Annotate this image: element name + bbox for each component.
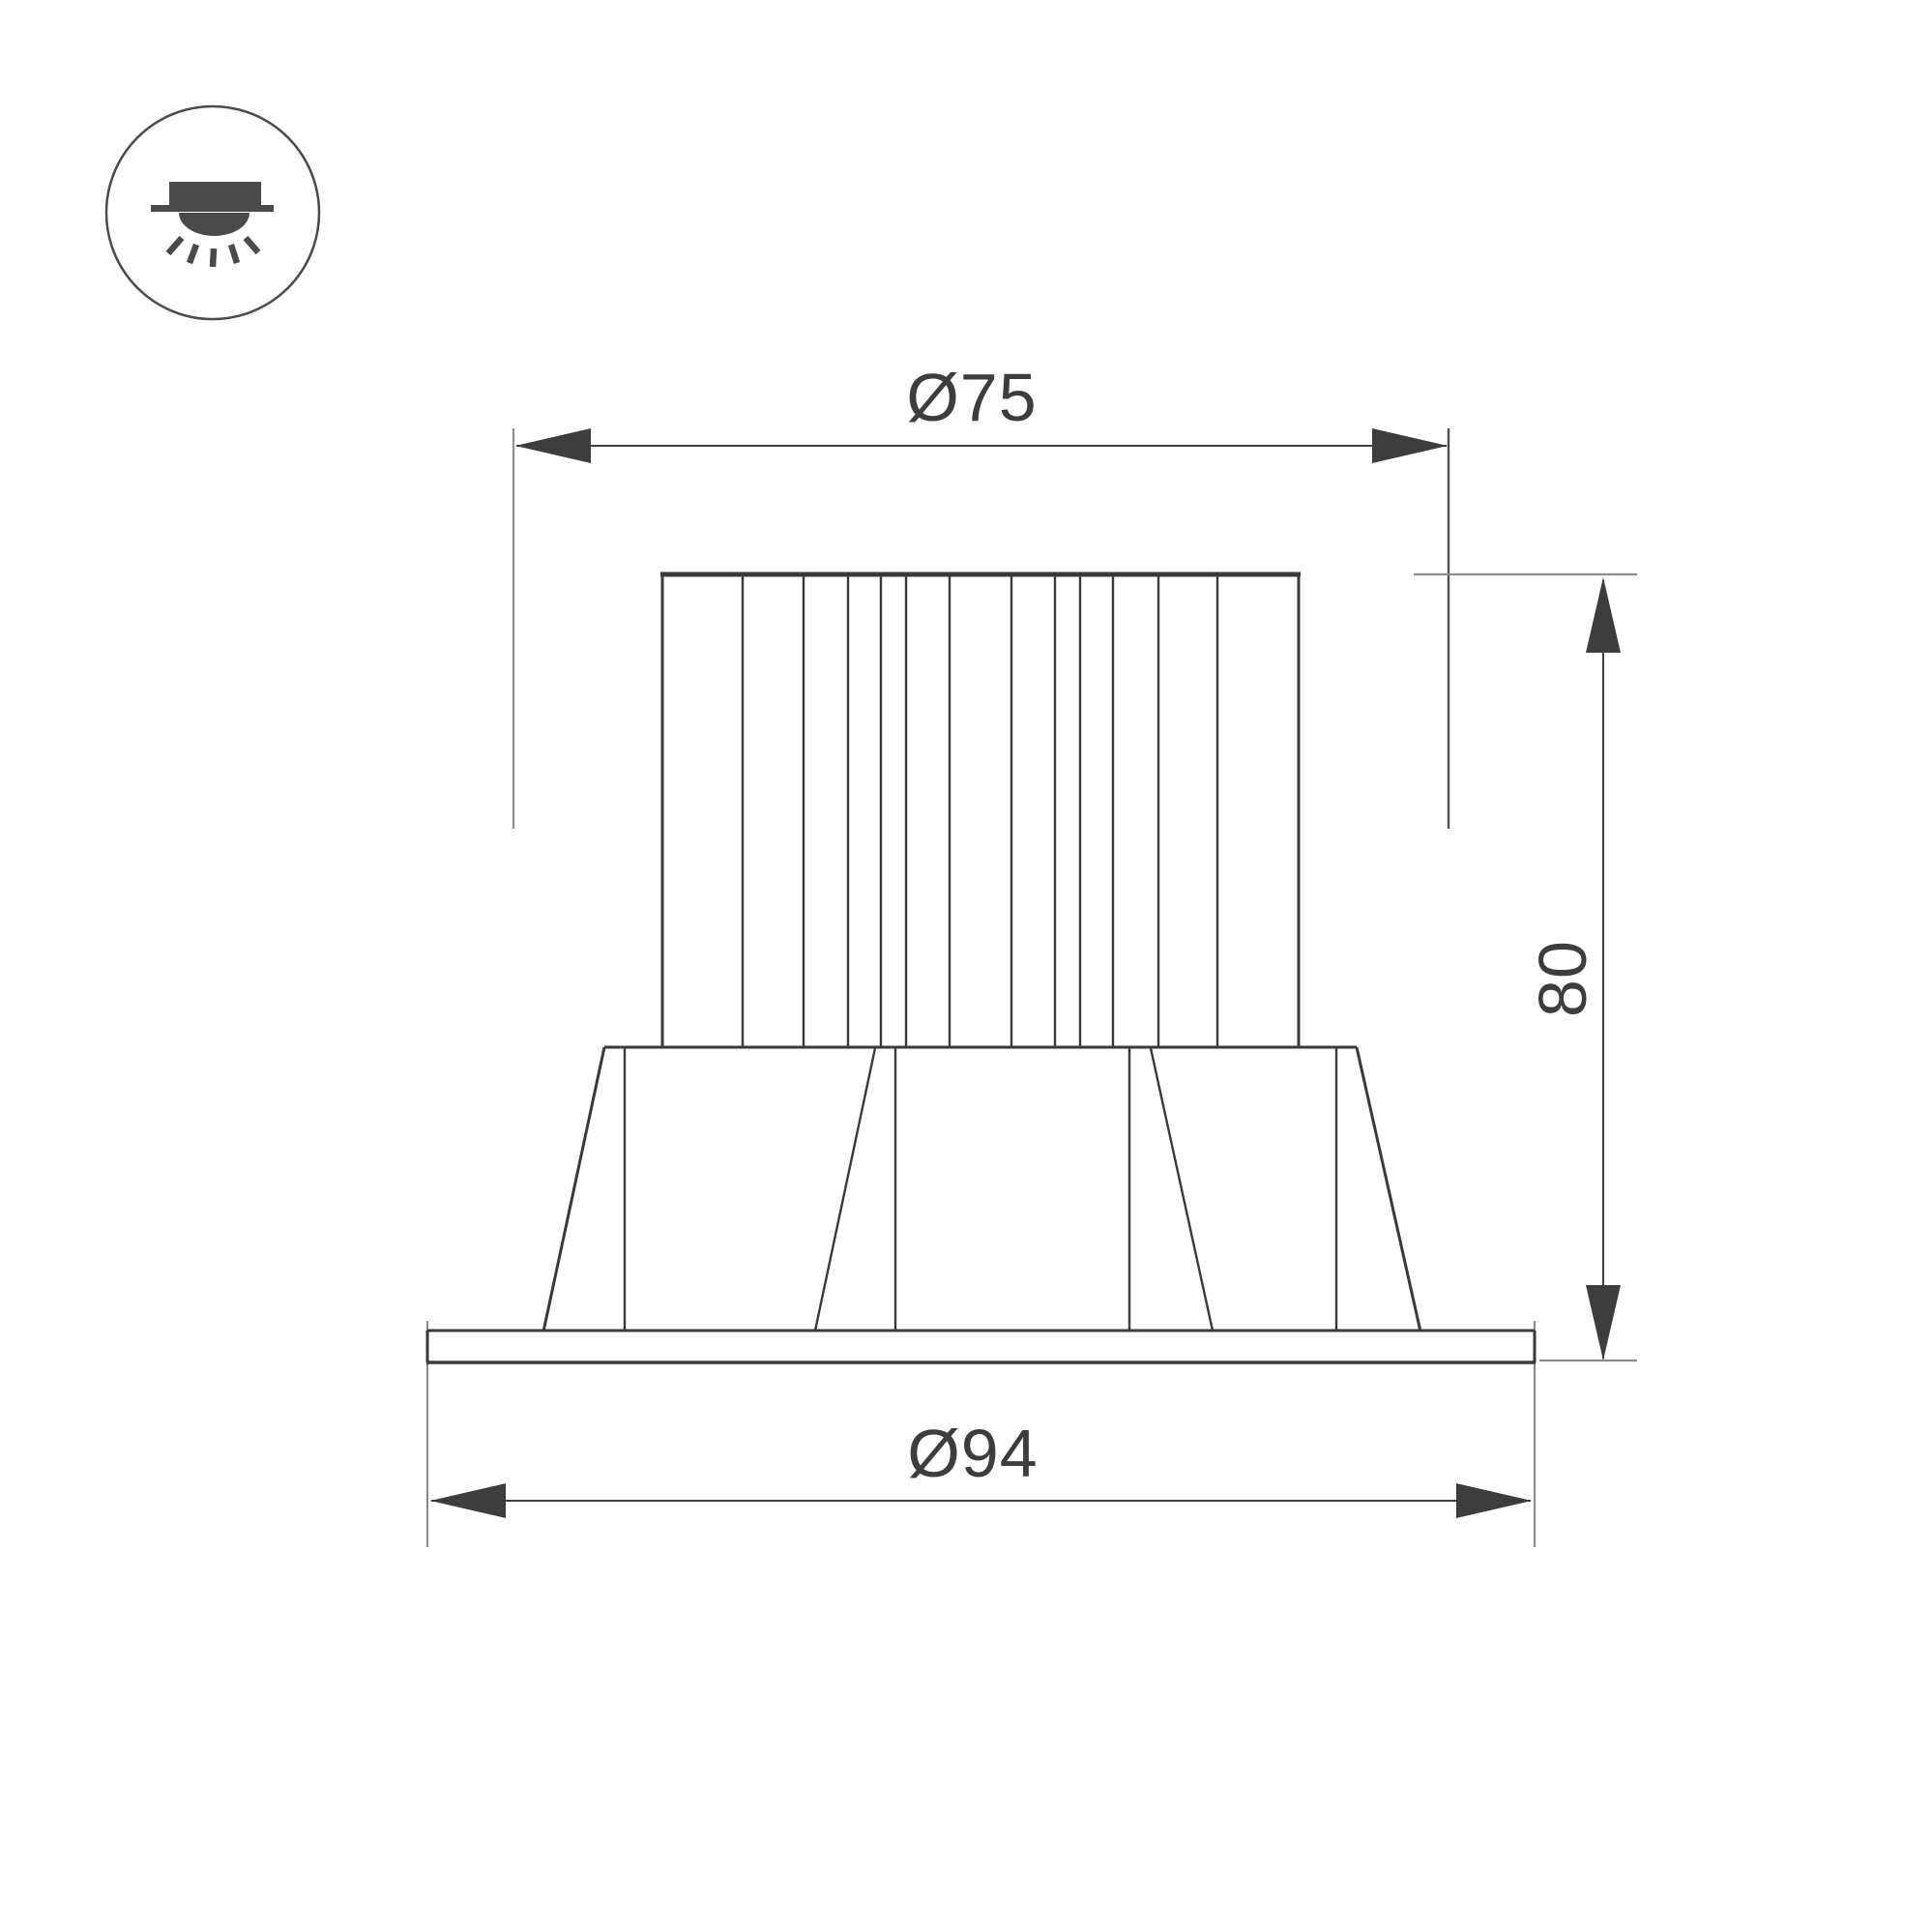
dimension-bottom-diameter: Ø94 (430, 1416, 1532, 1518)
heatsink-fins (743, 576, 1217, 1046)
heatsink (660, 574, 1301, 1047)
arrow-down-icon (1586, 1285, 1621, 1361)
dimension-top-diameter: Ø75 (515, 360, 1448, 463)
dim-label-bottom-diameter: Ø94 (907, 1416, 1038, 1491)
body-left-slant (543, 1047, 604, 1332)
icon-ceiling-flange (151, 205, 274, 212)
extension-lines (427, 428, 1637, 1547)
arrow-right-icon (1372, 428, 1448, 463)
trim-flange (426, 1331, 1536, 1362)
drawing-sheet: Ø75 80 Ø94 (0, 0, 1932, 1932)
arrow-left-icon (430, 1483, 506, 1518)
arrow-right-icon (1456, 1483, 1532, 1518)
icon-light-rays (168, 238, 258, 267)
mounting-body (543, 1047, 1420, 1332)
dim-label-height: 80 (1525, 940, 1600, 1017)
icon-lamp-body (169, 182, 261, 207)
recessed-downlight-icon (106, 106, 319, 319)
dim-label-top-diameter: Ø75 (906, 360, 1037, 435)
body-inner-slant (1151, 1048, 1213, 1331)
body-inner-slant (815, 1048, 875, 1331)
luminaire-front-view (426, 574, 1536, 1362)
dimension-height: 80 (1525, 577, 1621, 1361)
body-right-slant (1357, 1047, 1420, 1332)
dimension-drawing: Ø75 80 Ø94 (0, 0, 1932, 1932)
arrow-left-icon (515, 428, 591, 463)
arrow-up-icon (1586, 577, 1621, 653)
icon-light-dome (179, 213, 249, 236)
